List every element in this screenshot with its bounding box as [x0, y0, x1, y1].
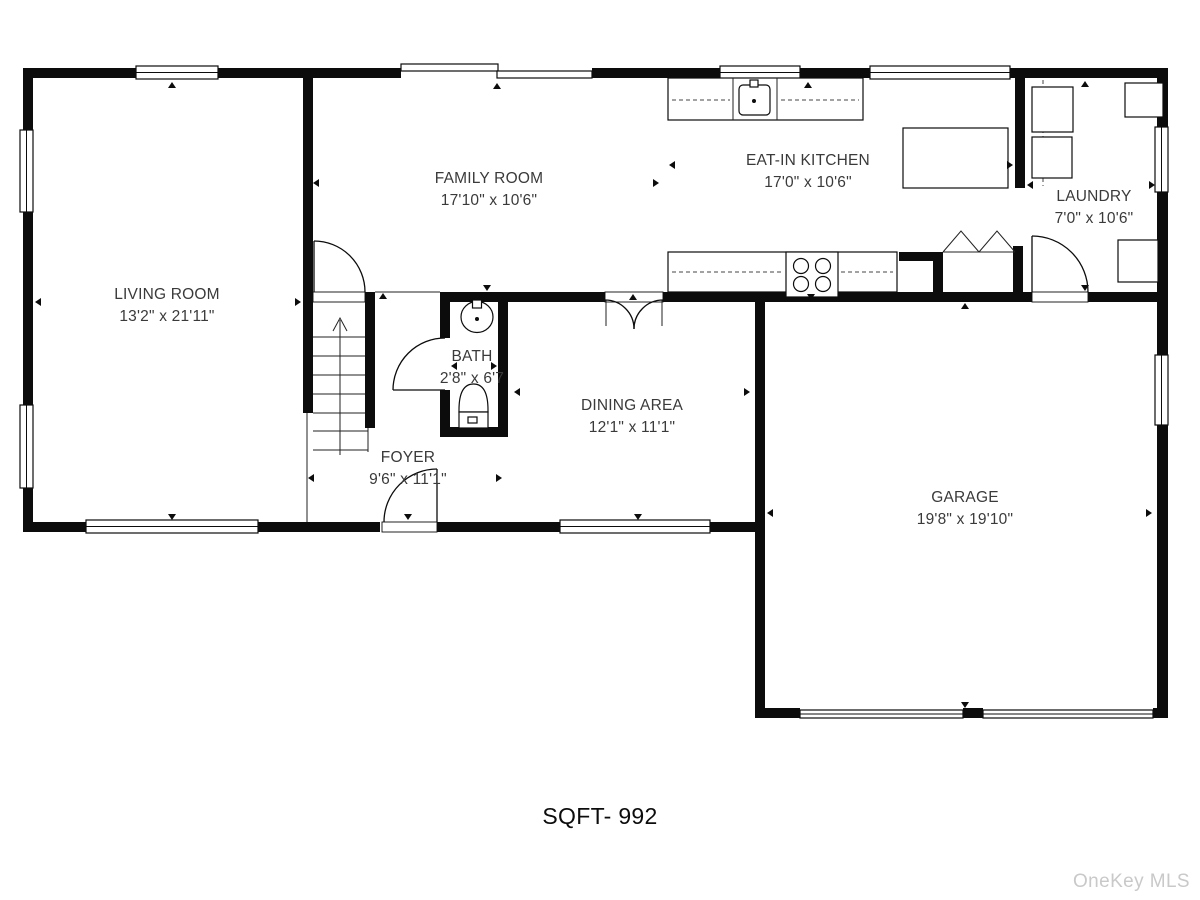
room-name: LAUNDRY — [984, 186, 1200, 208]
kitchen-island — [903, 128, 1008, 188]
toilet — [459, 384, 488, 428]
room-name: BATH — [362, 346, 582, 368]
laundry-tub — [1118, 240, 1158, 282]
room-dims: 2'8" x 6'7 — [362, 368, 582, 390]
room-dims: 17'10" x 10'6" — [379, 190, 599, 212]
room-label-dining: DINING AREA 12'1" x 11'1" — [522, 395, 742, 439]
dining-double-door — [605, 300, 663, 329]
bifold-door — [943, 231, 1015, 252]
room-label-family: FAMILY ROOM 17'10" x 10'6" — [379, 168, 599, 212]
room-label-living: LIVING ROOM 13'2" x 21'11" — [57, 284, 277, 328]
floorplan-drawing — [0, 0, 1200, 900]
room-label-kitchen: EAT-IN KITCHEN 17'0" x 10'6" — [698, 150, 918, 194]
room-name: FAMILY ROOM — [379, 168, 599, 190]
room-name: GARAGE — [855, 487, 1075, 509]
room-label-garage: GARAGE 19'8" x 19'10" — [855, 487, 1075, 531]
room-dims: 19'8" x 19'10" — [855, 509, 1075, 531]
stairs-up-arrow — [333, 318, 347, 455]
laundry-garage-door — [1032, 236, 1088, 292]
room-dims: 7'0" x 10'6" — [984, 208, 1200, 230]
room-name: LIVING ROOM — [57, 284, 277, 306]
laundry-cabinet — [1125, 83, 1163, 117]
room-dims: 9'6" x 11'1" — [298, 469, 518, 491]
room-label-foyer: FOYER 9'6" x 11'1" — [298, 447, 518, 491]
room-dims: 17'0" x 10'6" — [698, 172, 918, 194]
room-label-laundry: LAUNDRY 7'0" x 10'6" — [984, 186, 1200, 230]
room-name: DINING AREA — [522, 395, 742, 417]
kitchen-sink — [739, 80, 770, 115]
room-dims: 12'1" x 11'1" — [522, 417, 742, 439]
room-name: EAT-IN KITCHEN — [698, 150, 918, 172]
room-dims: 13'2" x 21'11" — [57, 306, 277, 328]
watermark-onekey-mls: OneKey MLS — [1073, 871, 1190, 893]
sliding-door — [401, 64, 498, 71]
dryer — [1032, 137, 1072, 178]
floorplan-page: LIVING ROOM 13'2" x 21'11" FAMILY ROOM 1… — [0, 0, 1200, 900]
family-room-door — [314, 241, 365, 292]
stove — [786, 252, 838, 297]
total-sqft-label: SQFT- 992 — [490, 803, 710, 830]
room-name: FOYER — [298, 447, 518, 469]
stairs — [313, 318, 368, 455]
bath-sink — [461, 300, 493, 333]
washer — [1032, 87, 1073, 132]
laundry-fixtures — [1032, 80, 1163, 282]
room-label-bath: BATH 2'8" x 6'7 — [362, 346, 582, 390]
